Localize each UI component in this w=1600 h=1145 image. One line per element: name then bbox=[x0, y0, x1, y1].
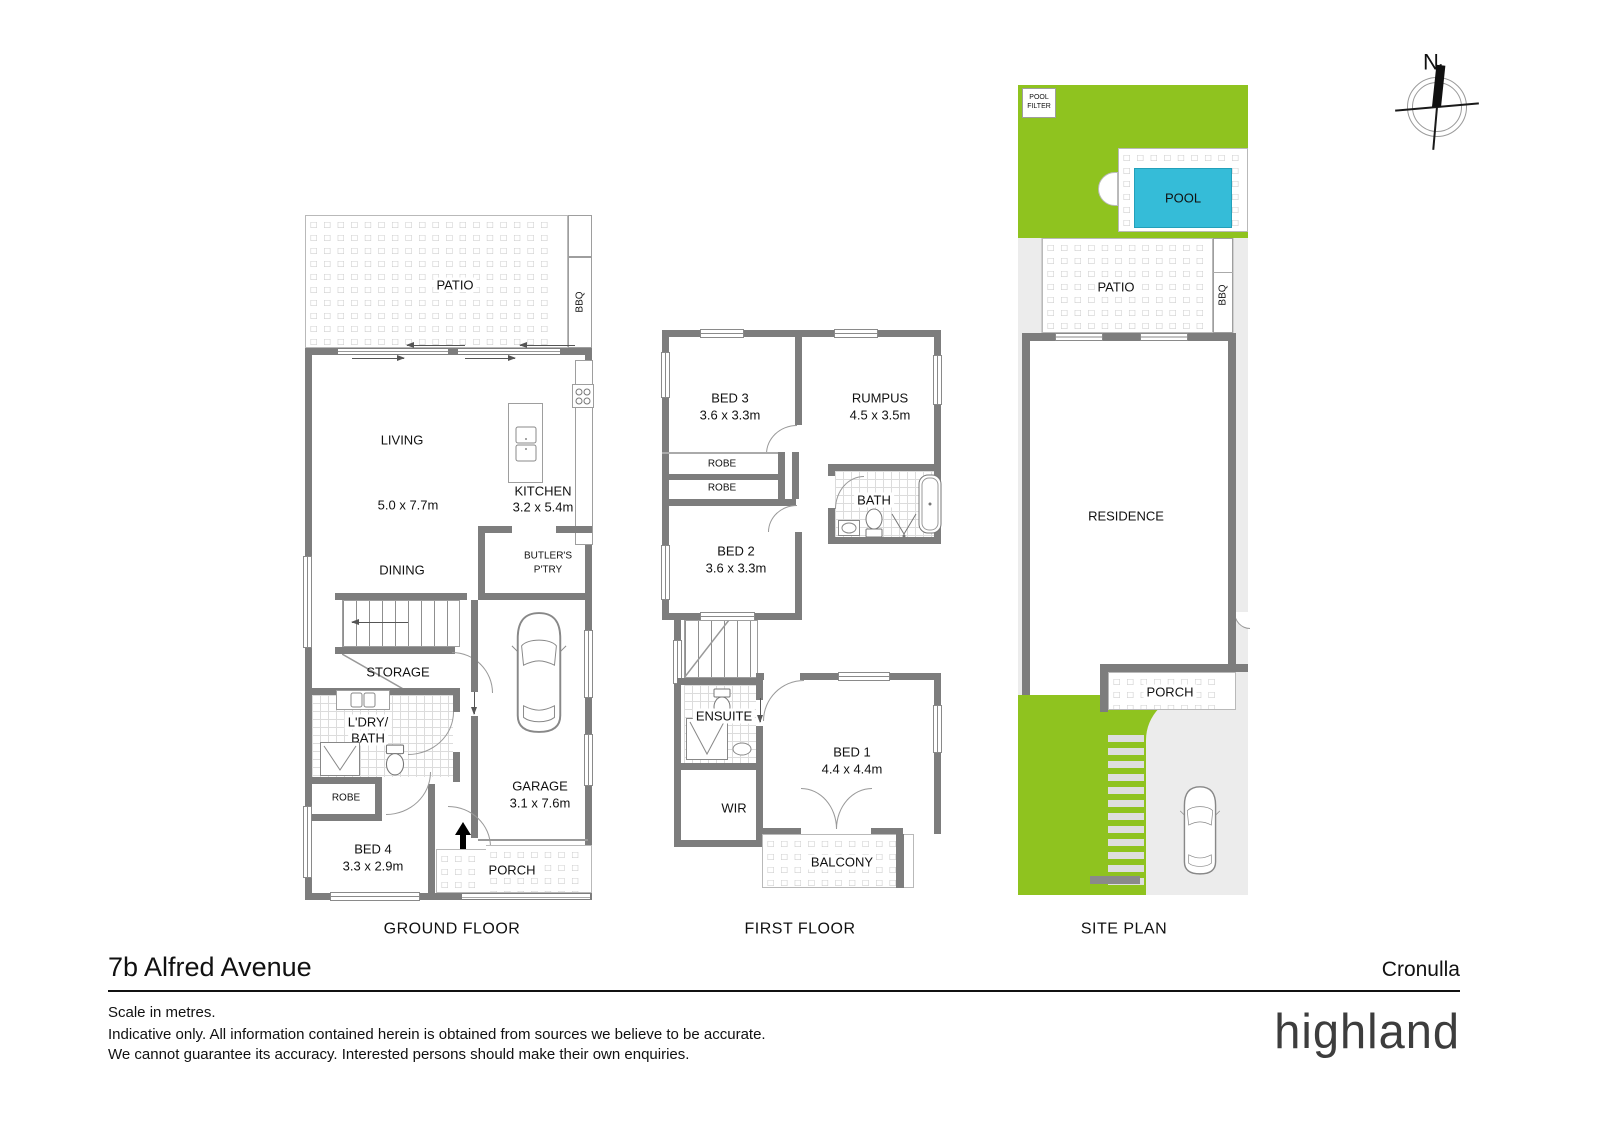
wall bbox=[795, 532, 802, 620]
ff-robe1-label: ROBE bbox=[708, 457, 736, 472]
wall bbox=[828, 464, 835, 476]
gf-robe-label: ROBE bbox=[332, 791, 360, 806]
gf-butlers-label-1: BUTLER'S bbox=[524, 549, 572, 564]
wall bbox=[677, 678, 763, 685]
shower-icon bbox=[320, 742, 360, 776]
gf-garage-dim: 3.1 x 7.6m bbox=[510, 796, 571, 811]
gf-kitchen-dim: 3.2 x 5.4m bbox=[513, 500, 574, 515]
sp-patio-label: PATIO bbox=[1094, 280, 1137, 295]
sp-step bbox=[1108, 774, 1144, 781]
car-icon bbox=[1176, 784, 1224, 876]
disclaimer-line-2: We cannot guarantee its accuracy. Intere… bbox=[108, 1046, 689, 1063]
wall bbox=[556, 526, 592, 533]
gf-bed4-label: BED 4 bbox=[354, 842, 392, 857]
sink-icon bbox=[838, 520, 860, 536]
stove-icon bbox=[572, 384, 594, 408]
gf-porch-paving-pattern: □□□□□□□□□□□□□□□□□□□□□□□□□□□□□□□□□□□□□□□□… bbox=[436, 849, 486, 893]
gf-porch-label: PORCH bbox=[486, 863, 539, 878]
wall bbox=[428, 784, 435, 893]
door-arc bbox=[386, 772, 431, 815]
ff-ensuite-label: ENSUITE bbox=[693, 709, 755, 724]
balcony-door-arc bbox=[836, 788, 872, 829]
wall bbox=[478, 526, 512, 533]
wall bbox=[756, 673, 764, 680]
gf-garage-door-arrow bbox=[474, 692, 475, 714]
wall bbox=[448, 348, 458, 355]
wall bbox=[1022, 333, 1030, 710]
ff-bed2-dim: 3.6 x 3.3m bbox=[706, 561, 767, 576]
gf-bbq-counter bbox=[568, 215, 592, 257]
window bbox=[933, 355, 942, 405]
wall bbox=[795, 337, 802, 425]
wall bbox=[677, 840, 765, 847]
ff-bed2-label: BED 2 bbox=[717, 544, 755, 559]
window bbox=[1140, 333, 1188, 341]
window bbox=[838, 672, 890, 681]
ff-bed3-label: BED 3 bbox=[711, 391, 749, 406]
ff-ensuite-door-arrow bbox=[760, 698, 761, 722]
ff-rumpus-label: RUMPUS bbox=[852, 391, 908, 406]
wall bbox=[1228, 333, 1236, 672]
wall bbox=[478, 526, 485, 600]
gf-living-dim: 5.0 x 7.7m bbox=[378, 498, 439, 513]
disclaimer-line-1: Indicative only. All information contain… bbox=[108, 1026, 766, 1043]
address: 7b Alfred Avenue bbox=[108, 952, 312, 983]
wall bbox=[778, 452, 785, 499]
window bbox=[834, 329, 878, 338]
door-arc bbox=[766, 425, 797, 454]
wall bbox=[1100, 664, 1108, 712]
bathtub-icon bbox=[918, 474, 942, 534]
scale-note: Scale in metres. bbox=[108, 1004, 216, 1021]
footer-divider bbox=[108, 990, 1460, 992]
shower-icon bbox=[686, 718, 728, 760]
gf-garage-label: GARAGE bbox=[512, 779, 568, 794]
ff-robe-shelf-line bbox=[662, 452, 778, 454]
wall bbox=[453, 752, 460, 782]
sp-step bbox=[1108, 748, 1144, 755]
window bbox=[330, 892, 420, 901]
door-arc bbox=[763, 680, 804, 721]
sp-step bbox=[1108, 865, 1144, 872]
floorplan-page: □□□□□□□□□□□□□□□□□□□□□□□□□□□□□□□□□□□□□□□□… bbox=[0, 0, 1600, 1145]
gf-garage-door-line bbox=[478, 839, 588, 841]
wall bbox=[662, 474, 778, 480]
sp-bbq-divider bbox=[1213, 272, 1233, 273]
window bbox=[1055, 333, 1103, 341]
entry-arrow-stem bbox=[460, 834, 466, 850]
shower-icon bbox=[890, 512, 918, 538]
gf-title: GROUND FLOOR bbox=[384, 922, 521, 937]
ff-bed3-dim: 3.6 x 3.3m bbox=[700, 408, 761, 423]
wall bbox=[792, 452, 799, 499]
kitchen-sink-icon bbox=[515, 426, 537, 462]
window bbox=[700, 329, 744, 338]
wall bbox=[896, 834, 904, 888]
gf-kitchen-label: KITCHEN bbox=[514, 484, 571, 499]
wall bbox=[1236, 664, 1248, 672]
sp-retaining-wall bbox=[1090, 876, 1140, 884]
gf-slider-arrow bbox=[407, 345, 465, 346]
wall bbox=[1100, 664, 1244, 672]
ff-stairs-line bbox=[684, 620, 758, 678]
window bbox=[661, 545, 670, 600]
gf-bed4-dim: 3.3 x 2.9m bbox=[343, 859, 404, 874]
wall bbox=[756, 678, 763, 700]
ff-bed1-dim: 4.4 x 4.4m bbox=[822, 762, 883, 777]
wall bbox=[677, 763, 763, 770]
balcony-door-arc bbox=[801, 788, 837, 829]
wall bbox=[828, 464, 941, 471]
wall bbox=[312, 777, 382, 784]
sp-step bbox=[1108, 735, 1144, 742]
gf-slider-arrow bbox=[465, 358, 515, 359]
window bbox=[584, 630, 593, 698]
window bbox=[933, 705, 942, 753]
ff-robe2-label: ROBE bbox=[708, 481, 736, 496]
sp-pool-label: POOL bbox=[1165, 191, 1201, 206]
gf-slider-arrow bbox=[352, 358, 404, 359]
gf-porch-edge-line bbox=[462, 897, 590, 898]
ff-balcony-label: BALCONY bbox=[808, 855, 876, 870]
gf-dining-label: DINING bbox=[379, 563, 425, 578]
toilet-icon bbox=[862, 508, 886, 538]
window bbox=[584, 734, 593, 786]
gf-laundry-label-1: L'DRY/ bbox=[345, 715, 392, 730]
wall bbox=[478, 593, 592, 600]
wall bbox=[335, 647, 455, 654]
wall bbox=[934, 673, 941, 834]
gf-stairs-arrow bbox=[352, 622, 408, 623]
wall bbox=[453, 688, 460, 712]
sp-residence-label: RESIDENCE bbox=[1088, 509, 1164, 524]
gf-living-label: LIVING bbox=[381, 433, 424, 448]
wall bbox=[312, 814, 382, 821]
sp-pool-filter-label-2: FILTER bbox=[1027, 103, 1051, 111]
wall bbox=[662, 499, 796, 506]
window bbox=[661, 352, 670, 398]
sp-step bbox=[1108, 800, 1144, 807]
sp-bbq-label: BBQ bbox=[1216, 284, 1231, 305]
wall bbox=[828, 537, 941, 544]
car-icon bbox=[510, 604, 568, 740]
brand-logo: highland bbox=[1140, 1002, 1460, 1060]
suburb: Cronulla bbox=[1160, 958, 1460, 982]
door-arc bbox=[768, 505, 797, 532]
sink-icon bbox=[350, 692, 376, 708]
gf-stairs bbox=[342, 600, 460, 647]
gf-bbq-label: BBQ bbox=[573, 291, 588, 312]
gf-slider-arrow bbox=[520, 345, 575, 346]
ff-bath-label: BATH bbox=[854, 493, 894, 508]
window bbox=[303, 806, 312, 878]
gf-storage-label: STORAGE bbox=[366, 665, 429, 680]
sp-step bbox=[1108, 787, 1144, 794]
ff-wir-label: WIR bbox=[721, 801, 746, 816]
sp-pool-filter-label-1: POOL bbox=[1029, 94, 1048, 102]
wall bbox=[335, 593, 467, 600]
ff-title: FIRST FLOOR bbox=[745, 922, 856, 937]
sp-step bbox=[1108, 761, 1144, 768]
gf-patio-label: PATIO bbox=[433, 278, 476, 293]
sp-step bbox=[1108, 826, 1144, 833]
sp-step bbox=[1108, 852, 1144, 859]
window bbox=[303, 556, 312, 648]
sp-step bbox=[1108, 813, 1144, 820]
wall bbox=[756, 770, 763, 840]
sink-icon bbox=[732, 742, 752, 756]
sp-step bbox=[1108, 839, 1144, 846]
sp-porch-label: PORCH bbox=[1144, 685, 1197, 700]
sp-title: SITE PLAN bbox=[1081, 922, 1167, 937]
ff-rumpus-dim: 4.5 x 3.5m bbox=[850, 408, 911, 423]
ff-bed1-label: BED 1 bbox=[833, 745, 871, 760]
gf-butlers-label-2: P'TRY bbox=[534, 563, 562, 578]
wall bbox=[471, 600, 478, 692]
